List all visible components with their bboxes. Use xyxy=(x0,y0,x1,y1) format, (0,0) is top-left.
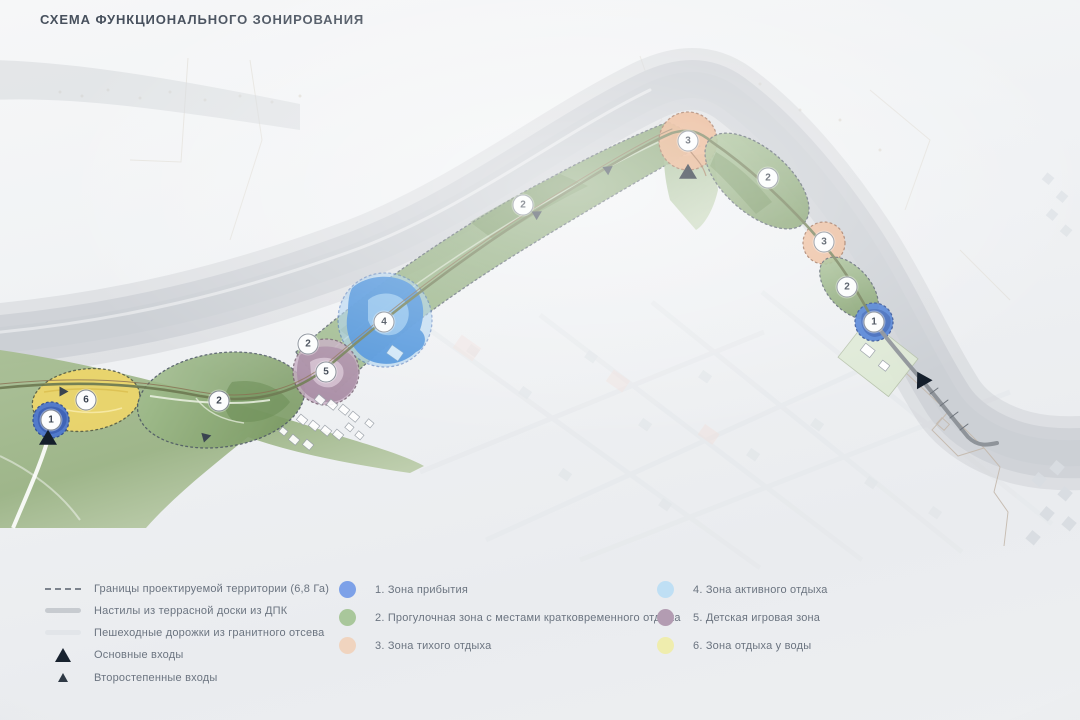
zone-arrival-left xyxy=(33,402,69,438)
legend-zones-1-3: 1. Зона прибытия 2. Прогулочная зона с м… xyxy=(339,581,681,659)
zoning-scheme-board: СХЕМА ФУНКЦИОНАЛЬНОГО ЗОНИРОВАНИЯ 162254… xyxy=(0,0,1080,720)
faint-buildings-topright xyxy=(1042,172,1073,237)
legend-label: 4. Зона активного отдыха xyxy=(693,584,828,596)
main-entrance-icon xyxy=(43,648,83,662)
legend: Границы проектируемой территории (6,8 Га… xyxy=(0,570,1080,720)
legend-label: 6. Зона отдыха у воды xyxy=(693,640,811,652)
legend-item-gravel: Пешеходные дорожки из гранитного отсева xyxy=(43,626,329,639)
legend-linear-features: Границы проектируемой территории (6,8 Га… xyxy=(43,582,329,684)
legend-zone-5: 5. Детская игровая зона xyxy=(657,609,828,626)
page-title: СХЕМА ФУНКЦИОНАЛЬНОГО ЗОНИРОВАНИЯ xyxy=(40,12,364,27)
legend-item-secondary-entrances: Второстепенные входы xyxy=(43,671,329,684)
legend-label: Настилы из террасной доски из ДПК xyxy=(94,605,287,617)
legend-zone-1: 1. Зона прибытия xyxy=(339,581,681,598)
legend-label: 3. Зона тихого отдыха xyxy=(375,640,491,652)
legend-label: 5. Детская игровая зона xyxy=(693,612,820,624)
legend-label: Пешеходные дорожки из гранитного отсева xyxy=(94,627,325,639)
zone-4-swatch xyxy=(657,581,674,598)
dashed-line-icon xyxy=(43,588,83,590)
zone-1-swatch xyxy=(339,581,356,598)
secondary-entrance-icon xyxy=(43,673,83,682)
legend-label: Границы проектируемой территории (6,8 Га… xyxy=(94,583,329,595)
legend-zone-2: 2. Прогулочная зона с местами кратковрем… xyxy=(339,609,681,626)
legend-label: 2. Прогулочная зона с местами кратковрем… xyxy=(375,612,681,624)
legend-label: Основные входы xyxy=(94,649,183,661)
legend-item-main-entrances: Основные входы xyxy=(43,648,329,662)
legend-zone-6: 6. Зона отдыха у воды xyxy=(657,637,828,654)
zone-6-swatch xyxy=(657,637,674,654)
legend-zone-4: 4. Зона активного отдыха xyxy=(657,581,828,598)
decking-line-icon xyxy=(43,608,83,613)
legend-item-decking: Настилы из террасной доски из ДПК xyxy=(43,604,329,617)
gravel-line-icon xyxy=(43,630,83,635)
legend-label: Второстепенные входы xyxy=(94,672,218,684)
zone-3-swatch xyxy=(339,637,356,654)
zone-5-swatch xyxy=(657,609,674,626)
zone-2-swatch xyxy=(339,609,356,626)
legend-item-boundary: Границы проектируемой территории (6,8 Га… xyxy=(43,582,329,595)
legend-zone-3: 3. Зона тихого отдыха xyxy=(339,637,681,654)
legend-zones-4-6: 4. Зона активного отдыха 5. Детская игро… xyxy=(657,581,828,659)
legend-label: 1. Зона прибытия xyxy=(375,584,468,596)
